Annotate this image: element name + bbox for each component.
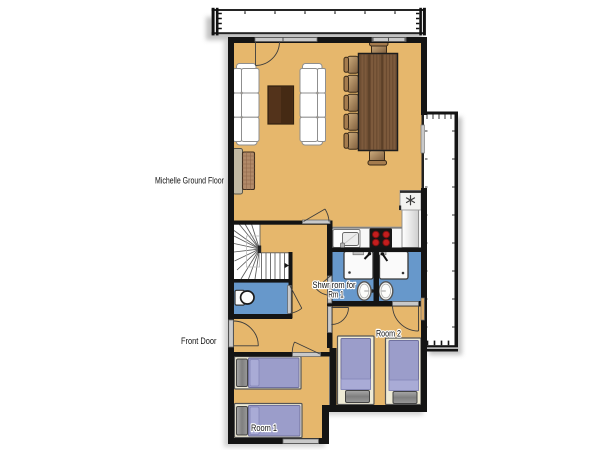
svg-text:Room 1: Room 1 [251, 423, 277, 433]
svg-text:Rm 1: Rm 1 [328, 290, 344, 300]
svg-text:Room 2: Room 2 [376, 329, 401, 339]
svg-text:Front Door: Front Door [181, 335, 217, 346]
svg-text:Shwr rom for: Shwr rom for [313, 280, 356, 290]
svg-text:Michelle Ground Floor: Michelle Ground Floor [155, 176, 225, 187]
